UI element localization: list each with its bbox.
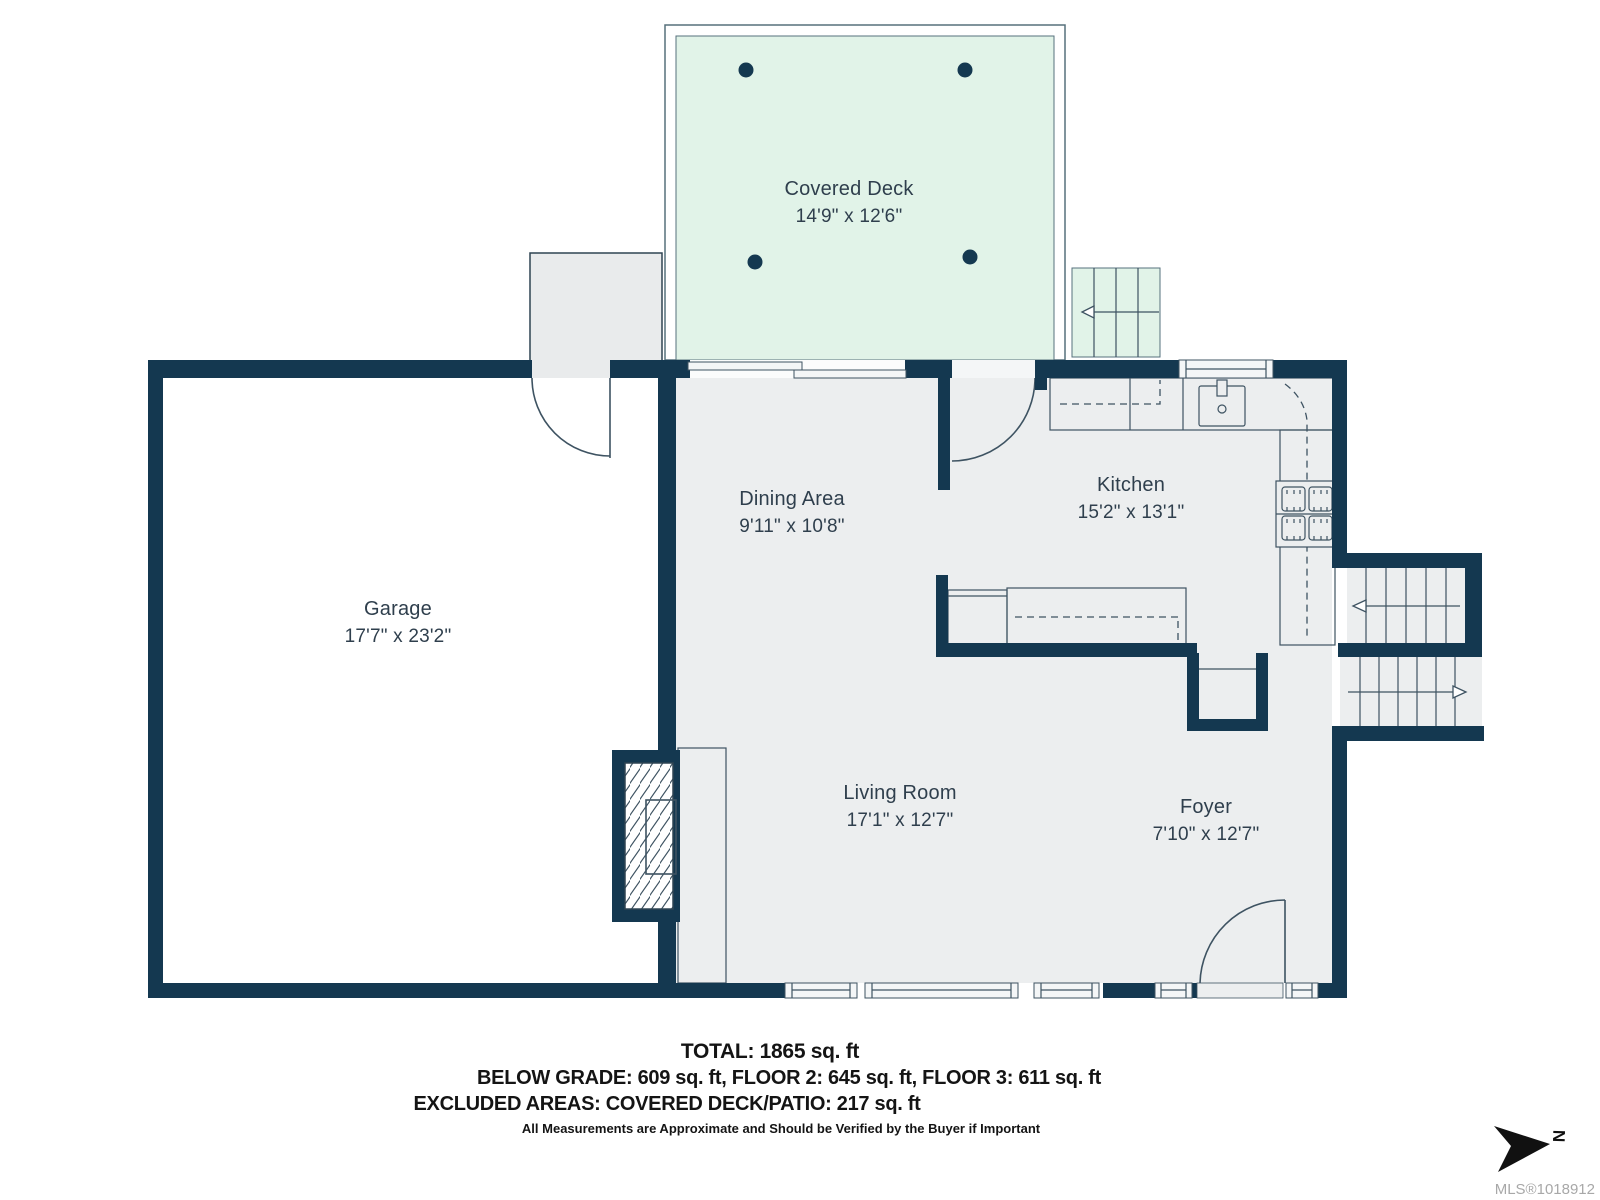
foyer-window xyxy=(1155,983,1192,998)
room-name: Garage xyxy=(345,596,452,623)
room-name: Foyer xyxy=(1153,794,1260,821)
room-dims: 17'1" x 12'7" xyxy=(843,807,956,834)
room-dims: 7'10" x 12'7" xyxy=(1153,821,1260,848)
entry-threshold xyxy=(1197,983,1283,998)
room-label-kitchen: Kitchen 15'2" x 13'1" xyxy=(1078,472,1185,526)
garage-floor xyxy=(163,378,658,983)
foyer-window xyxy=(1286,983,1318,998)
floorplan-page: Covered Deck 14'9" x 12'6" Garage 17'7" … xyxy=(0,0,1600,1200)
kitchen-window xyxy=(1179,360,1273,378)
deck-post-icon xyxy=(748,255,763,270)
total-area-line: TOTAL: 1865 sq. ft xyxy=(0,1040,1570,1064)
room-label-covered-deck: Covered Deck 14'9" x 12'6" xyxy=(784,176,913,230)
room-name: Kitchen xyxy=(1078,472,1185,499)
deck-post-icon xyxy=(958,63,973,78)
room-name: Covered Deck xyxy=(784,176,913,203)
sliding-door xyxy=(688,360,906,378)
room-dims: 15'2" x 13'1" xyxy=(1078,499,1185,526)
area-summary: TOTAL: 1865 sq. ft BELOW GRADE: 609 sq. … xyxy=(0,1040,1570,1136)
landing xyxy=(530,253,662,363)
deck-post-icon xyxy=(739,63,754,78)
mls-number: MLS®1018912 xyxy=(1495,1181,1595,1198)
kitchen-door-threshold xyxy=(952,360,1035,378)
living-room-window xyxy=(1034,983,1099,998)
north-label: N xyxy=(1548,1130,1568,1143)
main-floor xyxy=(663,378,1332,983)
living-room-window xyxy=(785,983,857,998)
room-label-foyer: Foyer 7'10" x 12'7" xyxy=(1153,794,1260,848)
living-room-window xyxy=(865,983,1018,998)
room-name: Dining Area xyxy=(739,486,845,513)
room-label-living-room: Living Room 17'1" x 12'7" xyxy=(843,780,956,834)
floor-areas-line: BELOW GRADE: 609 sq. ft, FLOOR 2: 645 sq… xyxy=(0,1067,1589,1090)
hearth xyxy=(678,748,726,983)
room-name: Living Room xyxy=(843,780,956,807)
fireplace-icon xyxy=(612,750,680,922)
living-room-fixtures xyxy=(678,748,726,983)
kitchen-sink-icon xyxy=(1199,380,1245,426)
room-dims: 14'9" x 12'6" xyxy=(784,203,913,230)
deck-post-icon xyxy=(963,250,978,265)
excluded-areas-line: EXCLUDED AREAS: COVERED DECK/PATIO: 217 … xyxy=(0,1093,1467,1116)
room-label-garage: Garage 17'7" x 23'2" xyxy=(345,596,452,650)
room-dims: 9'11" x 10'8" xyxy=(739,513,845,540)
garage-door-threshold xyxy=(532,360,610,378)
disclaimer-line: All Measurements are Approximate and Sho… xyxy=(0,1121,1581,1136)
stove-icon xyxy=(1276,481,1338,547)
room-label-dining-area: Dining Area 9'11" x 10'8" xyxy=(739,486,845,540)
room-dims: 17'7" x 23'2" xyxy=(345,623,452,650)
